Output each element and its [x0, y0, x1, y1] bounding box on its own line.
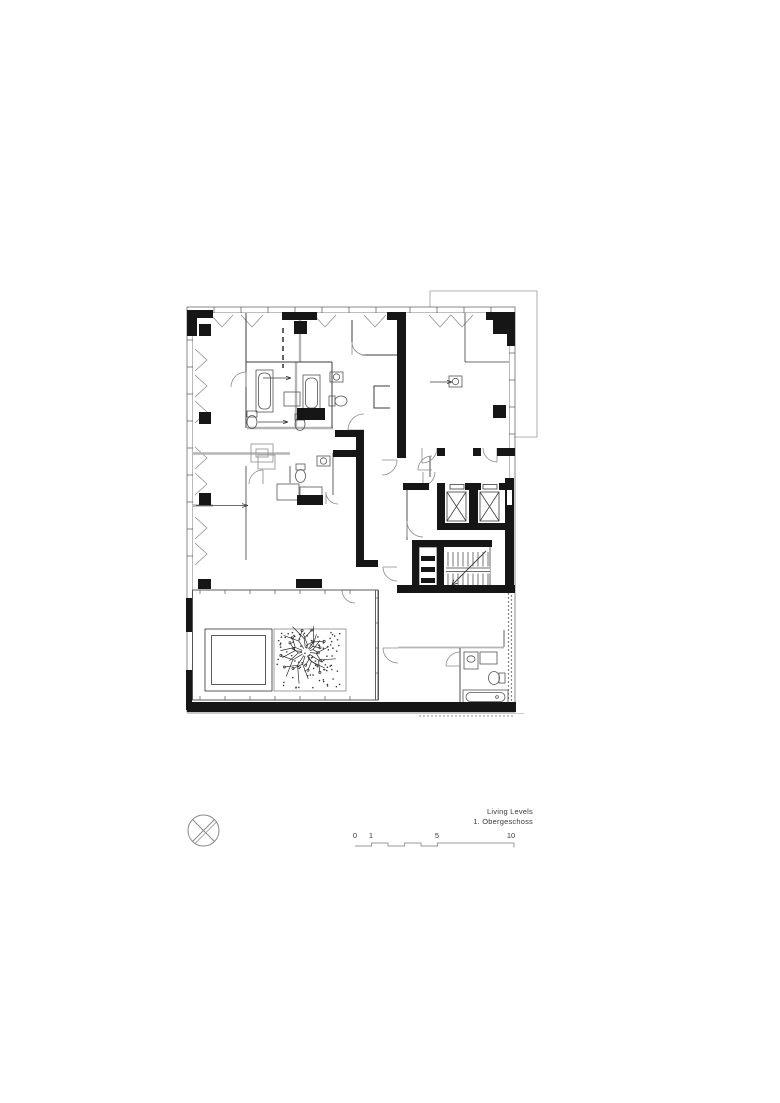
toilet: [296, 464, 306, 483]
project-title: Living Levels: [380, 807, 533, 817]
sink: [317, 456, 330, 466]
floor-plan-drawing: [0, 0, 780, 1103]
elevator-shaft: [480, 485, 499, 522]
casement-window-marks: [195, 315, 473, 565]
north-arrow-icon: [188, 815, 219, 846]
scale-label-1: 1: [369, 831, 373, 840]
toilet: [489, 672, 506, 685]
floor-plan-sheet: Living Levels 1. Obergeschoss 0 1 5 10: [0, 0, 780, 1103]
plumbing-fixtures: [247, 370, 508, 704]
scale-label-5: 5: [435, 831, 439, 840]
pool: [205, 629, 272, 691]
sink: [464, 652, 478, 669]
column: [493, 320, 507, 334]
scale-label-10: 10: [507, 831, 515, 840]
column: [294, 321, 307, 334]
level-label: 1. Obergeschoss: [380, 817, 533, 827]
bathtub: [463, 690, 508, 704]
scale-bar: [355, 843, 514, 848]
washer: [284, 392, 300, 406]
column: [493, 405, 506, 418]
terrace: [193, 590, 379, 700]
elevator-shaft: [447, 485, 466, 522]
column: [199, 324, 211, 336]
cabinet: [480, 652, 497, 664]
gray-partitions: [193, 320, 504, 648]
column: [198, 579, 211, 589]
glazing-box: [251, 444, 275, 469]
scale-label-0: 0: [353, 831, 357, 840]
toilet: [247, 411, 257, 429]
column: [199, 412, 211, 424]
cabinet: [277, 484, 299, 500]
title-block: Living Levels 1. Obergeschoss: [380, 807, 533, 826]
column: [199, 493, 211, 505]
